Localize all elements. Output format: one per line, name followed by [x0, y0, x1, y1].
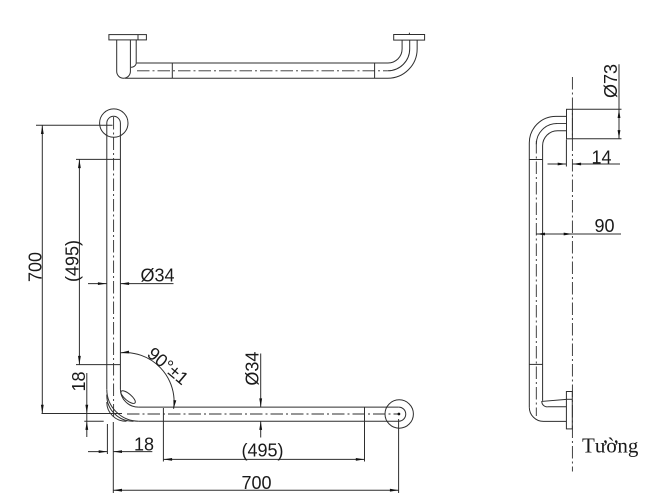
svg-text:(495): (495) [63, 240, 83, 282]
svg-text:700: 700 [26, 252, 46, 282]
svg-text:Ø73: Ø73 [601, 64, 621, 98]
svg-text:(495): (495) [242, 440, 284, 460]
svg-text:18: 18 [69, 371, 89, 391]
svg-text:14: 14 [592, 148, 612, 168]
svg-text:700: 700 [242, 473, 272, 493]
svg-text:Ø34: Ø34 [141, 266, 175, 286]
svg-text:Tường: Tường [582, 433, 639, 457]
svg-text:18: 18 [134, 434, 154, 454]
svg-text:90°±1: 90°±1 [143, 343, 192, 389]
svg-text:Ø34: Ø34 [243, 352, 263, 386]
svg-text:90: 90 [595, 216, 615, 236]
